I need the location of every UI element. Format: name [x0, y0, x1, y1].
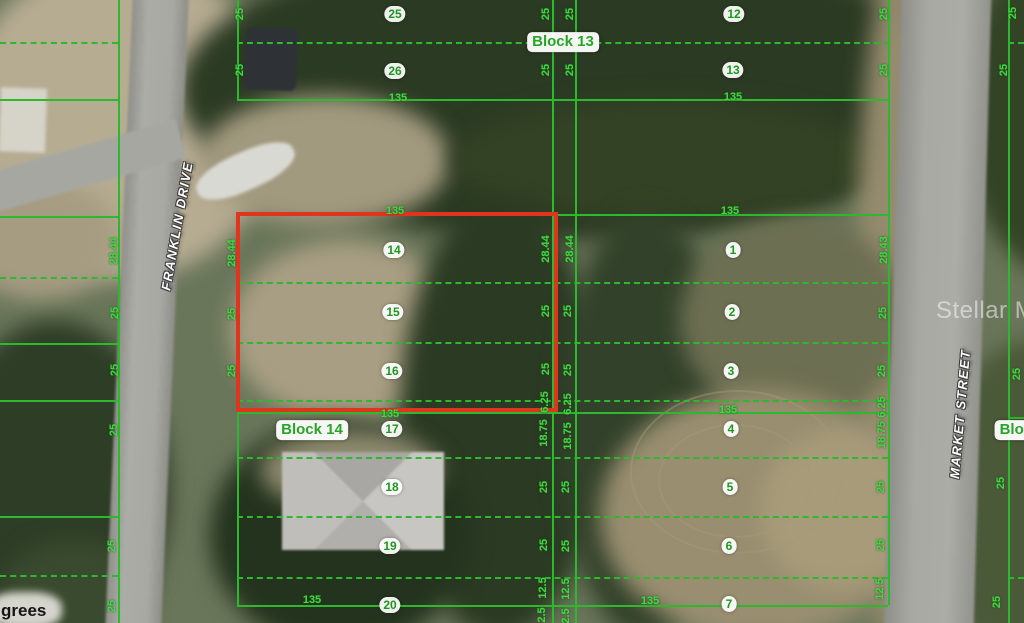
lot-number-badge: 3: [724, 363, 739, 379]
dimension-label: 25: [560, 540, 572, 552]
dimension-label: 25: [540, 363, 552, 375]
parcel-boundary-line: [575, 0, 577, 623]
lot-number-badge: 6: [722, 538, 737, 554]
parcel-boundary-line: [237, 516, 888, 518]
dimension-label: 28.44: [108, 237, 120, 265]
dimension-label: 135: [721, 205, 739, 217]
dimension-label: 25: [878, 8, 890, 20]
lot-number-badge: 2: [725, 304, 740, 320]
dimension-label: 25: [1007, 7, 1019, 19]
parcel-boundary-line: [0, 343, 118, 345]
dimension-label: 25: [562, 364, 574, 376]
lot-number-badge: 15: [382, 304, 403, 320]
aerial-parcel-map: 2526121314151617181920123456713513513513…: [0, 0, 1024, 623]
terrain-patch: [680, 220, 910, 420]
dimension-label: 2.5: [536, 607, 548, 622]
parcel-boundary-line: [1008, 577, 1024, 579]
dimension-label: 25: [108, 424, 120, 436]
lot-number-badge: 7: [722, 596, 737, 612]
dimension-label: 25: [538, 481, 550, 493]
dimension-label: 25: [560, 481, 572, 493]
dimension-label: 25: [564, 64, 576, 76]
dimension-label: 25: [995, 477, 1007, 489]
block-label-block-14: Block 14: [276, 420, 348, 440]
dimension-label: 12.5: [537, 577, 549, 598]
parcel-boundary-line: [0, 99, 118, 101]
parcel-boundary-line: [888, 0, 890, 605]
lot-number-badge: 12: [723, 6, 744, 22]
lot-number-badge: 14: [383, 242, 404, 258]
parcel-boundary-line: [1008, 42, 1024, 44]
dimension-label: 25: [877, 307, 889, 319]
dimension-label: 25: [226, 308, 238, 320]
lot-number-badge: 19: [379, 538, 400, 554]
dimension-label: 25: [106, 600, 118, 612]
parcel-boundary-line: [237, 605, 888, 607]
dimension-label: 135: [641, 595, 659, 607]
dimension-label: 28.44: [226, 239, 238, 267]
dimension-label: 135: [389, 92, 407, 104]
shed: [0, 87, 47, 153]
corner-watermark-partial: grees: [1, 601, 46, 621]
lot-number-badge: 20: [379, 597, 400, 613]
dimension-label: 12.5: [560, 578, 572, 599]
dimension-label: 25: [540, 305, 552, 317]
dimension-label: 135: [303, 594, 321, 606]
dimension-label: 25: [540, 8, 552, 20]
dimension-label: 25: [540, 64, 552, 76]
dimension-label: 6.25: [562, 393, 574, 414]
parcel-boundary-line: [0, 400, 118, 402]
dimension-label: 25: [1011, 368, 1023, 380]
lot-number-badge: 4: [724, 421, 739, 437]
dimension-label: 6.25: [876, 396, 888, 417]
dimension-label: 28.44: [564, 235, 576, 263]
lot-number-badge: 13: [722, 62, 743, 78]
lot-number-badge: 1: [726, 242, 741, 258]
parcel-boundary-line: [0, 516, 118, 518]
parcel-boundary-line: [237, 99, 888, 101]
dimension-label: 25: [562, 305, 574, 317]
dimension-label: 25: [234, 8, 246, 20]
lot-number-badge: 18: [381, 479, 402, 495]
dimension-label: 25: [234, 64, 246, 76]
house-roof: [282, 452, 444, 550]
dimension-label: 18.75: [876, 421, 888, 449]
dimension-label: 25: [878, 64, 890, 76]
dimension-label: 25: [875, 481, 887, 493]
stellar-mls-watermark: Stellar MLS: [936, 297, 1024, 325]
dimension-label: 25: [109, 364, 121, 376]
parcel-boundary-line: [1008, 417, 1024, 419]
dimension-label: 135: [386, 205, 404, 217]
lot-number-badge: 16: [381, 363, 402, 379]
dimension-label: 25: [876, 365, 888, 377]
dimension-label: 25: [109, 307, 121, 319]
lot-number-badge: 5: [723, 479, 738, 495]
vehicle: [244, 27, 298, 91]
dimension-label: 25: [226, 365, 238, 377]
lot-number-badge: 25: [384, 6, 405, 22]
lot-number-badge: 17: [381, 421, 402, 437]
dimension-label: 28.43: [878, 236, 890, 264]
dimension-label: 135: [719, 404, 737, 416]
dimension-label: 135: [724, 91, 742, 103]
lot-number-badge: 26: [384, 63, 405, 79]
parcel-boundary-line: [0, 575, 118, 577]
block-label-block-13: Block 13: [527, 32, 599, 52]
block-label-block-east: Block: [995, 420, 1024, 440]
dimension-label: 135: [381, 408, 399, 420]
dimension-label: 6.25: [539, 391, 551, 412]
dimension-label: 25: [564, 8, 576, 20]
dimension-label: 12.5: [874, 578, 886, 599]
parcel-boundary-line: [0, 42, 118, 44]
parcel-boundary-line: [0, 216, 118, 218]
dimension-label: 25: [875, 539, 887, 551]
dimension-label: 25: [538, 539, 550, 551]
dimension-label: 18.75: [538, 419, 550, 447]
dimension-label: 25: [991, 596, 1003, 608]
parcel-boundary-line: [237, 457, 888, 459]
dimension-label: 18.75: [562, 422, 574, 450]
dimension-label: 2.5: [560, 608, 572, 623]
dimension-label: 25: [998, 64, 1010, 76]
parcel-boundary-line: [0, 277, 118, 279]
dimension-label: 25: [106, 540, 118, 552]
dimension-label: 28.44: [540, 235, 552, 263]
